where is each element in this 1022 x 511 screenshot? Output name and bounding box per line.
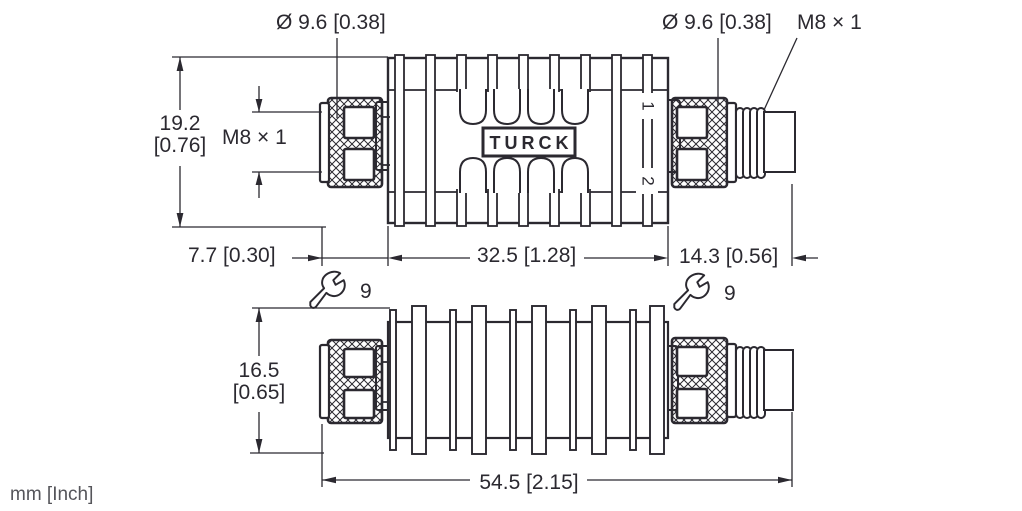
bottom-right-tip: [764, 350, 793, 410]
wrench-size-left: 9: [360, 281, 372, 303]
top-right-tip: [764, 112, 795, 172]
bottom-view: [320, 306, 793, 454]
length-dim-total: 54.5 [2.15]: [476, 472, 581, 494]
diameter-label-left: Ø 9.6 [0.38]: [276, 12, 386, 34]
top-right-thread: [736, 108, 765, 178]
top-left-coupling-nut: [320, 98, 390, 187]
turck-logo-text: TURCK: [490, 133, 573, 153]
height-dim-top-view: 19.2 [0.76]: [151, 113, 210, 158]
thread-label-left: M8 × 1: [222, 127, 287, 149]
top-right-coupling-nut: [672, 98, 736, 187]
leader-thread-right: [764, 38, 797, 110]
wrench-icon-left: [310, 272, 345, 308]
bottom-right-thread: [736, 347, 765, 418]
length-dim-right: 14.3 [0.56]: [676, 246, 781, 268]
thread-label-right: M8 × 1: [797, 12, 862, 34]
bottom-right-coupling-nut: [672, 338, 736, 423]
top-view-body: TURCK 1 2: [388, 55, 668, 226]
length-dim-left: 7.7 [0.30]: [188, 245, 276, 267]
top-view: TURCK 1 2: [320, 55, 795, 226]
pin-label-2: 2: [639, 176, 658, 185]
wrench-icon-right: [674, 274, 709, 310]
diameter-label-right: Ø 9.6 [0.38]: [662, 12, 772, 34]
bottom-left-coupling-nut: [320, 340, 390, 423]
turck-logo: TURCK: [483, 128, 575, 156]
height-dim-bottom-inch: [0.65]: [233, 382, 286, 404]
height-dim-bottom-view: 16.5 [0.65]: [230, 360, 289, 405]
pin-label-1: 1: [639, 101, 658, 110]
height-dim-top-inch: [0.76]: [154, 135, 207, 157]
height-dim-top-mm: 19.2: [154, 113, 207, 135]
wrench-size-right: 9: [724, 283, 736, 305]
bottom-view-body: [388, 306, 668, 454]
units-label: mm [Inch]: [10, 485, 93, 505]
height-dim-bottom-mm: 16.5: [233, 360, 286, 382]
technical-drawing: TURCK 1 2: [0, 0, 1022, 511]
length-dim-body: 32.5 [1.28]: [474, 245, 579, 267]
